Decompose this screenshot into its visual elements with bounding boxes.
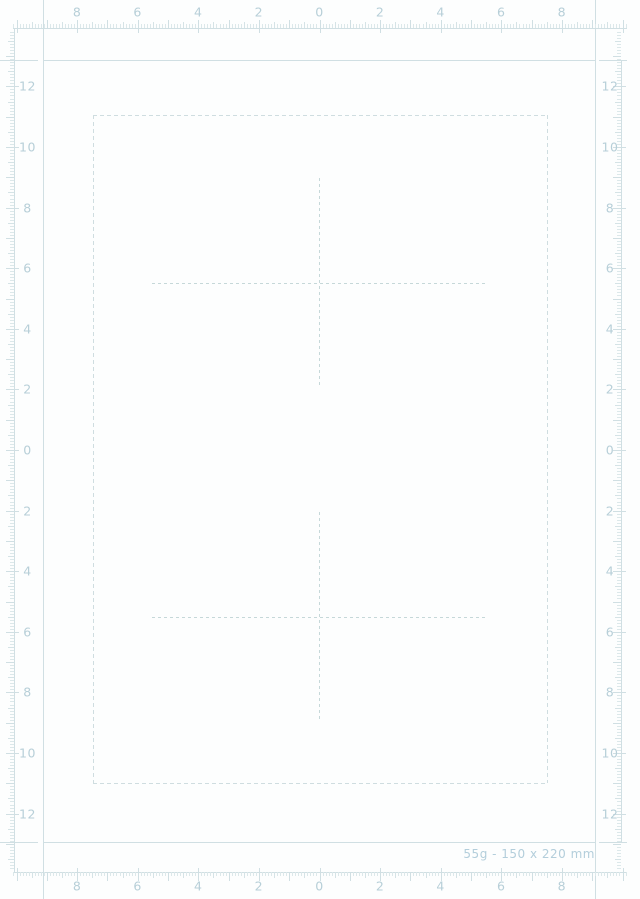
ruler-tick <box>235 24 236 28</box>
ruler-tick <box>613 632 627 633</box>
right-ruler-label-6: 0 <box>606 443 615 458</box>
ruler-tick <box>615 314 621 315</box>
ruler-tick <box>262 872 263 876</box>
ruler-tick <box>153 872 154 878</box>
ruler-tick <box>10 626 14 627</box>
ruler-tick <box>368 872 369 876</box>
ruler-tick <box>398 872 399 876</box>
card-left-edge-line <box>43 0 44 899</box>
ruler-tick <box>189 24 190 28</box>
ruler-tick <box>8 738 14 739</box>
ruler-tick <box>168 20 169 29</box>
right-ruler-label-8: 4 <box>606 564 615 579</box>
ruler-tick <box>617 695 621 696</box>
ruler-tick <box>238 24 239 28</box>
ruler-tick <box>295 872 296 876</box>
ruler-tick <box>444 872 445 876</box>
ruler-tick <box>617 862 621 863</box>
ruler-tick <box>165 24 166 28</box>
ruler-tick <box>10 199 14 200</box>
ruler-tick <box>507 24 508 28</box>
ruler-tick <box>617 705 621 706</box>
ruler-tick <box>83 24 84 28</box>
ruler-tick <box>374 24 375 28</box>
ruler-tick <box>615 374 621 375</box>
ruler-tick <box>10 95 14 96</box>
ruler-tick <box>47 20 48 29</box>
ruler-tick <box>10 326 14 327</box>
ruler-tick <box>86 872 87 876</box>
ruler-tick <box>617 477 621 478</box>
ruler-tick <box>326 24 327 28</box>
ruler-tick <box>59 872 60 876</box>
ruler-tick <box>289 872 290 881</box>
ruler-tick <box>350 20 351 29</box>
ruler-tick <box>10 835 14 836</box>
ruler-tick <box>250 872 251 876</box>
ruler-tick <box>8 405 14 406</box>
ruler-tick <box>10 865 14 866</box>
ruler-tick <box>359 872 360 876</box>
ruler-tick <box>617 438 621 439</box>
ruler-tick <box>495 872 496 876</box>
ruler-tick <box>6 117 15 118</box>
ruler-tick <box>10 156 14 157</box>
ruler-tick <box>10 559 14 560</box>
ruler-tick <box>280 872 281 876</box>
ruler-tick <box>468 872 469 876</box>
ruler-tick <box>10 638 14 639</box>
ruler-tick <box>617 732 621 733</box>
bottom-ruler-label-6: 4 <box>436 879 445 894</box>
ruler-tick <box>617 286 621 287</box>
ruler-tick <box>435 24 436 28</box>
ruler-tick <box>147 24 148 28</box>
ruler-tick <box>10 583 14 584</box>
ruler-tick <box>617 638 621 639</box>
ruler-tick <box>617 199 621 200</box>
ruler-tick <box>6 571 20 572</box>
ruler-tick <box>483 24 484 28</box>
ruler-tick <box>8 495 14 496</box>
ruler-tick <box>10 765 14 766</box>
ruler-tick <box>10 35 14 36</box>
ruler-tick <box>613 844 622 845</box>
ruler-tick <box>10 729 14 730</box>
ruler-tick <box>10 356 14 357</box>
ruler-tick <box>298 872 299 876</box>
ruler-tick <box>8 859 14 860</box>
ruler-tick <box>10 247 14 248</box>
ruler-tick <box>10 644 14 645</box>
ruler-tick <box>10 444 14 445</box>
ruler-tick <box>10 447 14 448</box>
ruler-tick <box>617 386 621 387</box>
ruler-tick <box>617 589 621 590</box>
ruler-tick <box>6 541 15 542</box>
ruler-tick <box>589 24 590 28</box>
ruler-tick <box>10 205 14 206</box>
ruler-tick <box>10 856 14 857</box>
ruler-tick <box>6 147 20 148</box>
ruler-tick <box>617 629 621 630</box>
ruler-tick <box>10 411 14 412</box>
ruler-tick <box>10 477 14 478</box>
ruler-tick <box>192 24 193 28</box>
ruler-tick <box>617 774 621 775</box>
ruler-tick <box>613 602 622 603</box>
ruler-tick <box>256 872 257 876</box>
ruler-tick <box>10 853 14 854</box>
ruler-tick <box>617 486 621 487</box>
bottom-ruler-label-3: 2 <box>255 879 264 894</box>
ruler-tick <box>10 402 14 403</box>
ruler-tick <box>89 24 90 28</box>
ruler-tick <box>10 550 14 551</box>
ruler-tick <box>613 56 622 57</box>
ruler-tick <box>613 177 622 178</box>
ruler-tick <box>10 508 14 509</box>
ruler-tick <box>10 826 14 827</box>
ruler-tick <box>301 24 302 28</box>
ruler-tick <box>568 24 569 28</box>
ruler-tick <box>617 368 621 369</box>
ruler-tick <box>617 671 621 672</box>
ruler-tick <box>10 211 14 212</box>
right-ruler-line <box>621 60 622 842</box>
ruler-tick <box>586 24 587 28</box>
top-ruler-label-2: 4 <box>194 5 203 20</box>
ruler-tick <box>65 872 66 876</box>
ruler-tick <box>617 35 621 36</box>
ruler-tick <box>8 526 14 527</box>
ruler-tick <box>617 311 621 312</box>
ruler-tick <box>10 165 14 166</box>
ruler-tick <box>617 347 621 348</box>
ruler-tick <box>617 247 621 248</box>
ruler-tick <box>10 347 14 348</box>
ruler-tick <box>453 24 454 28</box>
ruler-tick <box>8 253 14 254</box>
ruler-tick <box>29 24 30 28</box>
ruler-tick <box>8 344 14 345</box>
ruler-tick <box>544 24 545 28</box>
ruler-tick <box>401 872 402 876</box>
ruler-tick <box>10 605 14 606</box>
ruler-tick <box>10 129 14 130</box>
ruler-tick <box>32 872 33 878</box>
ruler-tick <box>10 341 14 342</box>
ruler-tick <box>10 362 14 363</box>
ruler-tick <box>617 108 621 109</box>
ruler-tick <box>144 872 145 876</box>
ruler-tick <box>615 829 621 830</box>
ruler-tick <box>617 53 621 54</box>
ruler-tick <box>595 872 596 876</box>
ruler-tick <box>617 520 621 521</box>
paper-outline-right <box>547 115 548 783</box>
right-ruler-label-9: 6 <box>606 624 615 639</box>
ruler-tick <box>10 817 14 818</box>
ruler-tick <box>598 24 599 28</box>
ruler-tick <box>607 22 608 28</box>
ruler-tick <box>320 20 321 33</box>
ruler-tick <box>44 872 45 876</box>
top-ruler-label-8: 8 <box>558 5 567 20</box>
paper-spec-caption: 55g - 150 x 220 mm <box>463 847 595 861</box>
ruler-tick <box>377 24 378 28</box>
ruler-tick <box>617 271 621 272</box>
ruler-tick <box>617 183 621 184</box>
ruler-tick <box>617 186 621 187</box>
ruler-tick <box>8 435 14 436</box>
ruler-tick <box>383 24 384 28</box>
bottom-right-edge-segment <box>599 842 627 843</box>
bottom-ruler-label-7: 6 <box>497 879 506 894</box>
ruler-tick <box>377 872 378 876</box>
ruler-tick <box>41 872 42 876</box>
ruler-tick <box>619 24 620 28</box>
ruler-tick <box>220 872 221 876</box>
ruler-tick <box>265 24 266 28</box>
ruler-tick <box>65 24 66 28</box>
ruler-tick <box>532 872 533 881</box>
ruler-tick <box>556 24 557 28</box>
ruler-tick <box>617 832 621 833</box>
ruler-tick <box>10 789 14 790</box>
ruler-tick <box>10 62 14 63</box>
ruler-tick <box>10 153 14 154</box>
ruler-tick <box>519 872 520 876</box>
ruler-tick <box>413 24 414 28</box>
right-ruler-label-11: 10 <box>601 746 618 761</box>
ruler-tick <box>468 24 469 28</box>
ruler-tick <box>356 24 357 28</box>
ruler-tick <box>165 872 166 876</box>
ruler-tick <box>617 680 621 681</box>
ruler-tick <box>271 872 272 876</box>
ruler-tick <box>535 872 536 876</box>
ruler-tick <box>10 529 14 530</box>
ruler-tick <box>617 456 621 457</box>
ruler-tick <box>116 24 117 28</box>
ruler-tick <box>8 617 14 618</box>
ruler-tick <box>619 872 620 876</box>
ruler-tick <box>241 872 242 876</box>
ruler-tick <box>10 635 14 636</box>
ruler-tick <box>504 872 505 876</box>
ruler-tick <box>617 395 621 396</box>
ruler-tick <box>83 872 84 876</box>
ruler-tick <box>301 872 302 876</box>
ruler-tick <box>617 241 621 242</box>
ruler-tick <box>307 24 308 28</box>
ruler-tick <box>68 872 69 876</box>
ruler-tick <box>10 565 14 566</box>
ruler-tick <box>10 195 14 196</box>
ruler-tick <box>617 765 621 766</box>
ruler-tick <box>10 144 14 145</box>
ruler-tick <box>135 24 136 28</box>
ruler-tick <box>617 265 621 266</box>
ruler-tick <box>474 872 475 876</box>
ruler-tick <box>6 450 20 451</box>
ruler-tick <box>8 647 14 648</box>
ruler-tick <box>10 114 14 115</box>
ruler-tick <box>10 232 14 233</box>
ruler-tick <box>6 753 20 754</box>
ruler-tick <box>74 24 75 28</box>
ruler-tick <box>553 24 554 28</box>
ruler-tick <box>253 872 254 876</box>
ruler-tick <box>617 577 621 578</box>
ruler-tick <box>615 859 621 860</box>
ruler-tick <box>35 872 36 876</box>
ruler-tick <box>174 872 175 876</box>
ruler-tick <box>95 872 96 876</box>
ruler-tick <box>8 283 14 284</box>
ruler-tick <box>438 872 439 876</box>
ruler-tick <box>123 22 124 28</box>
ruler-tick <box>10 456 14 457</box>
ruler-tick <box>613 662 622 663</box>
ruler-tick <box>10 368 14 369</box>
ruler-tick <box>617 168 621 169</box>
ruler-tick <box>10 568 14 569</box>
ruler-tick <box>416 872 417 876</box>
ruler-tick <box>10 398 14 399</box>
ruler-tick <box>510 872 511 876</box>
ruler-tick <box>617 402 621 403</box>
ruler-tick <box>271 24 272 28</box>
ruler-tick <box>10 726 14 727</box>
ruler-tick <box>601 872 602 876</box>
ruler-tick <box>617 214 621 215</box>
ruler-tick <box>613 24 614 28</box>
ruler-tick <box>132 872 133 876</box>
ruler-tick <box>353 24 354 28</box>
ruler-tick <box>617 514 621 515</box>
ruler-tick <box>20 872 21 876</box>
ruler-tick <box>207 24 208 28</box>
ruler-tick <box>617 447 621 448</box>
top-ruler-label-3: 2 <box>255 5 264 20</box>
ruler-tick <box>10 438 14 439</box>
ruler-tick <box>283 872 284 876</box>
ruler-tick <box>341 872 342 876</box>
ruler-tick <box>189 872 190 876</box>
right-ruler-label-2: 8 <box>606 200 615 215</box>
ruler-tick <box>8 556 14 557</box>
ruler-tick <box>459 24 460 28</box>
ruler-tick <box>617 408 621 409</box>
top-ruler-label-4: 0 <box>315 5 324 20</box>
ruler-tick <box>617 341 621 342</box>
ruler-tick <box>235 872 236 876</box>
ruler-tick <box>574 872 575 876</box>
ruler-tick <box>459 872 460 876</box>
ruler-tick <box>617 483 621 484</box>
ruler-tick <box>10 711 14 712</box>
ruler-tick <box>617 38 621 39</box>
ruler-tick <box>617 317 621 318</box>
ruler-tick <box>10 832 14 833</box>
ruler-tick <box>601 24 602 28</box>
ruler-tick <box>559 24 560 28</box>
ruler-tick <box>410 872 411 881</box>
ruler-tick <box>423 872 424 876</box>
ruler-tick <box>223 24 224 28</box>
ruler-tick <box>519 24 520 28</box>
ruler-tick <box>507 872 508 876</box>
ruler-tick <box>150 872 151 876</box>
ruler-tick <box>10 174 14 175</box>
ruler-tick <box>32 22 33 28</box>
ruler-tick <box>356 872 357 876</box>
ruler-tick <box>180 872 181 876</box>
ruler-tick <box>10 505 14 506</box>
ruler-tick <box>10 392 14 393</box>
ruler-tick <box>10 80 14 81</box>
ruler-tick <box>617 717 621 718</box>
ruler-tick <box>477 872 478 876</box>
ruler-tick <box>617 726 621 727</box>
ruler-tick <box>617 801 621 802</box>
ruler-tick <box>617 547 621 548</box>
ruler-tick <box>220 24 221 28</box>
ruler-tick <box>268 24 269 28</box>
ruler-tick <box>10 50 14 51</box>
ruler-tick <box>617 656 621 657</box>
ruler-tick <box>607 872 608 878</box>
ruler-tick <box>10 671 14 672</box>
ruler-tick <box>615 283 621 284</box>
ruler-tick <box>617 698 621 699</box>
ruler-tick <box>329 872 330 876</box>
ruler-tick <box>617 474 621 475</box>
ruler-tick <box>617 777 621 778</box>
ruler-tick <box>617 626 621 627</box>
ruler-tick <box>613 299 622 300</box>
ruler-tick <box>6 86 20 87</box>
ruler-tick <box>147 872 148 876</box>
ruler-tick <box>10 59 14 60</box>
ruler-tick <box>465 24 466 28</box>
ruler-tick <box>489 24 490 28</box>
ruler-tick <box>613 117 622 118</box>
ruler-tick <box>132 24 133 28</box>
ruler-tick <box>74 872 75 876</box>
ruler-tick <box>615 344 621 345</box>
ruler-tick <box>617 432 621 433</box>
ruler-tick <box>617 123 621 124</box>
right-ruler-label-12: 12 <box>601 806 618 821</box>
ruler-tick <box>617 362 621 363</box>
ruler-tick <box>10 750 14 751</box>
ruler-tick <box>571 24 572 28</box>
ruler-tick <box>617 226 621 227</box>
bottom-ruler-label-5: 2 <box>376 879 385 894</box>
ruler-tick <box>6 268 20 269</box>
ruler-tick <box>617 156 621 157</box>
ruler-tick <box>10 759 14 760</box>
paper-template-sheet: 8642024688642024681210864202468101212108… <box>0 0 640 899</box>
ruler-tick <box>129 24 130 28</box>
ruler-tick <box>432 24 433 28</box>
ruler-tick <box>592 20 593 29</box>
ruler-tick <box>6 177 15 178</box>
ruler-tick <box>617 729 621 730</box>
